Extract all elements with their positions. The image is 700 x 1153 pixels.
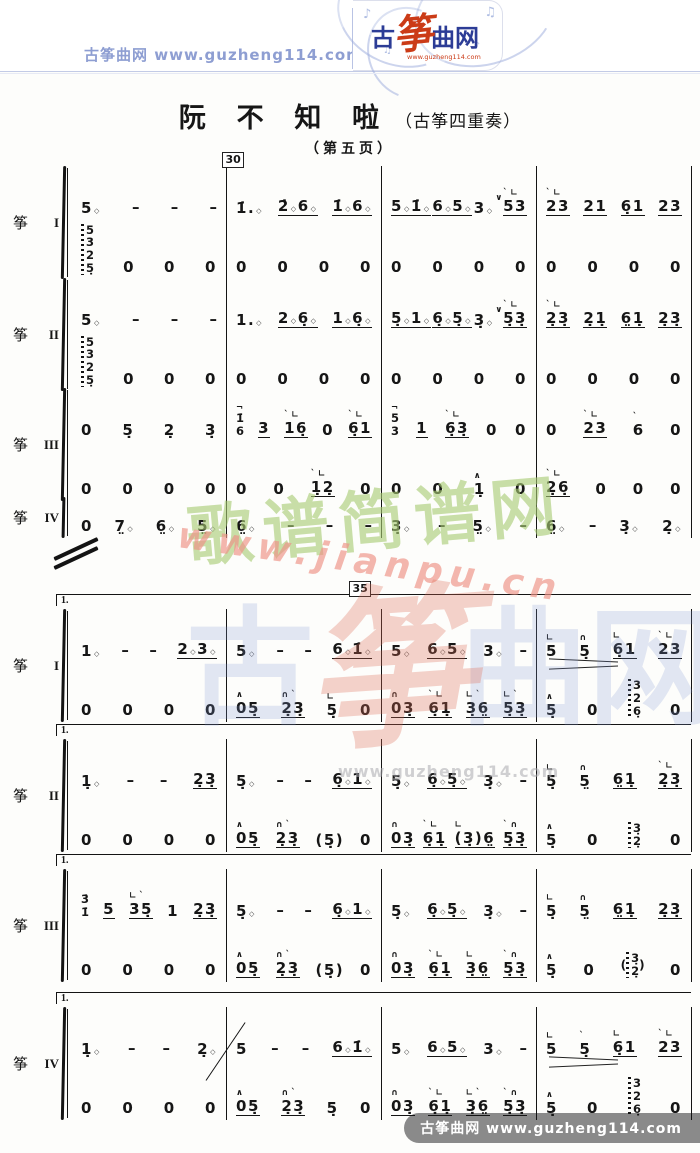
tremolo-diamond-icon: ◇ bbox=[365, 908, 372, 916]
accompaniment-line-measure: 00∧1̣0 bbox=[382, 442, 536, 501]
note-token: 6̣◇5̣◇ bbox=[427, 771, 467, 790]
part-label-numeral: III bbox=[44, 918, 59, 934]
tremolo-diamond-icon: ◇ bbox=[496, 1048, 503, 1056]
accompaniment-line-measure: 5325̣000 bbox=[72, 332, 226, 391]
measure: ∟5`5̣∟6̣1`∟23∧5̣0326̣0 bbox=[537, 1007, 692, 1120]
tremolo-diamond-icon: ◇ bbox=[94, 1048, 101, 1056]
note-token: 0 bbox=[670, 481, 682, 498]
note-token: (5̣) bbox=[316, 962, 345, 979]
melody-line-measure: 1̣◇––2̣◇ bbox=[72, 1007, 226, 1061]
ornament-mark: ∧ bbox=[474, 472, 484, 481]
measure-grid: 1̣◇––2̣3̣00005̣◇––6̣◇1◇∧05̣∩`2̣3̣(5̣)05̣… bbox=[72, 739, 692, 852]
note-token: 1◇ bbox=[81, 643, 101, 660]
note-token: 0 bbox=[486, 422, 498, 439]
system-zheng-IV: 筝IV07̤◇6̤◇5̤◇6̤◇–––3̣◇–5̤◇–6̤◇–3̣◇2̣◇ bbox=[10, 497, 692, 538]
tremolo-diamond-icon: ◇ bbox=[440, 648, 447, 656]
ornament-mark: ∩` bbox=[281, 691, 298, 700]
ornament-mark: ∩ bbox=[579, 894, 589, 903]
measure: 5◇6◇5◇3◇–∩03̣`∟6̣1̣∟`3̣6̤`∩5̣3̣ bbox=[382, 1007, 537, 1120]
tremolo-diamond-icon: ◇ bbox=[210, 1048, 217, 1056]
accompaniment-line-measure: ∧05̣∩`2̣3̣5̣0 bbox=[227, 1061, 381, 1120]
note-token: ∟5 bbox=[546, 643, 558, 660]
melody-line-measure: 05̣2̣3̣ bbox=[72, 388, 226, 442]
note-token: `∩5̣3̣ bbox=[503, 960, 527, 979]
note-token: 5◇1̇◇ bbox=[391, 198, 431, 217]
note-token: 0 bbox=[360, 832, 372, 849]
ornament-mark: `∟ bbox=[546, 470, 563, 479]
melody-line-measure: 1◇––2◇3◇ bbox=[72, 609, 226, 663]
ornament-mark: `∟ bbox=[428, 951, 445, 960]
ornament-mark: `∩ bbox=[503, 1089, 520, 1098]
note-token: 0 bbox=[587, 371, 599, 388]
tremolo-diamond-icon: ◇ bbox=[249, 910, 256, 918]
note-token: 0 bbox=[319, 371, 331, 388]
part-label-zheng: 筝 bbox=[13, 785, 28, 806]
note-token: 0 bbox=[122, 832, 134, 849]
tremolo-diamond-icon: ◇ bbox=[404, 650, 411, 658]
ornament-mark: `∟ bbox=[428, 1089, 445, 1098]
tremolo-diamond-icon: ◇ bbox=[632, 525, 639, 533]
tremolo-diamond-icon: ◇ bbox=[94, 207, 101, 215]
note-token: 0 bbox=[81, 962, 93, 979]
note-token: 0 bbox=[670, 371, 682, 388]
chord: 3̣2̣ bbox=[628, 822, 641, 848]
note-token: 0 bbox=[360, 371, 372, 388]
part-label: 筝I bbox=[10, 609, 62, 722]
accompaniment-line-measure: ∧5̣0(3̣2̣)0 bbox=[537, 923, 691, 982]
note-token: 2◇3◇ bbox=[177, 641, 217, 660]
note-token: – bbox=[519, 516, 527, 534]
note-token: 0 bbox=[546, 371, 558, 388]
accompaniment-line-measure: ∩03̣`∟6̣1̣∟(3̣)6̤`∩5̣3̣ bbox=[382, 793, 536, 852]
site-logo[interactable]: 古 筝 曲网 www.guzheng114.com bbox=[353, 0, 503, 71]
header-site-label: 古筝曲网 bbox=[84, 46, 148, 64]
note-token: `∟6̣1̣ bbox=[428, 960, 452, 979]
note-token: – bbox=[589, 516, 597, 534]
note-token: 2̣◇ bbox=[662, 518, 682, 535]
ornament-mark: ∧ bbox=[236, 951, 246, 960]
ornament-mark: ` bbox=[579, 1032, 586, 1041]
note-token: `∩5̣3̣ bbox=[503, 830, 527, 849]
ornament-mark: `∟ bbox=[348, 411, 365, 420]
part-label-zheng: 筝 bbox=[13, 324, 28, 345]
note-token: 0 bbox=[391, 481, 403, 498]
part-label-zheng: 筝 bbox=[13, 1053, 28, 1074]
system-zheng-III: 筝III05̣2̣3̣0000¬1̇63`∟16̣0`∟6̣100`∟1̣2̣0… bbox=[10, 388, 692, 501]
ornament-mark: `∩ bbox=[503, 821, 520, 830]
note-token: – bbox=[304, 901, 312, 919]
note-token: 1̇.◇ bbox=[236, 200, 263, 217]
note-token: 0 bbox=[595, 481, 607, 498]
note-token: ∟`35̣ bbox=[129, 901, 153, 920]
note-token: ∩`2̣3̣ bbox=[281, 1098, 305, 1117]
note-token: 6̤1̣ bbox=[613, 771, 637, 790]
measure: 0`∟23`60`∟2̣6̣000 bbox=[537, 388, 692, 501]
measure: 5◇–––5325̣000 bbox=[72, 166, 227, 279]
ornament-mark: ∧ bbox=[236, 1089, 246, 1098]
measure: 5̣◇6̣◇5̣◇3̣◇–∩03̣`∟6̣1̣∟3̣6̤`∩5̣3̣ bbox=[382, 869, 537, 982]
note-token: – bbox=[519, 771, 527, 789]
melody-line-measure: 07̤◇6̤◇5̤◇ bbox=[72, 497, 226, 538]
accompaniment-line-measure: `∟2̣6̣000 bbox=[537, 442, 691, 501]
note-token: 3̣◇ bbox=[483, 773, 503, 790]
note-token: 0 bbox=[122, 1100, 134, 1117]
note-token: 6̣◇5̣◇ bbox=[427, 901, 467, 920]
ornament-mark: `∟ bbox=[428, 691, 445, 700]
note-token: 0 bbox=[587, 832, 599, 849]
piece-title-main: 阮 不 知 啦 bbox=[179, 103, 391, 133]
ornament-mark: `∟ bbox=[658, 762, 675, 771]
melody-line-measure: ∟5̣∩5̤6̤1̣2̣3̣ bbox=[537, 869, 691, 923]
note-token: 0 bbox=[670, 832, 682, 849]
melody-line-measure: `∟23216̣123 bbox=[537, 166, 691, 220]
melody-line-measure: 0`∟23`60 bbox=[537, 388, 691, 442]
part-label-numeral: III bbox=[44, 437, 59, 453]
measure: ∟5̣∩5̤6̤1̣2̣3̣∧5̣0(3̣2̣)0 bbox=[537, 869, 692, 982]
measure-grid: 5◇–––5325̣0001.◇2◇6̣◇1◇6̣◇00005̣◇1◇6̣◇5̣… bbox=[72, 278, 692, 391]
melody-line-measure: 5◇––6◇1̇◇ bbox=[227, 609, 381, 663]
ornament-mark: ¬ bbox=[391, 404, 401, 413]
note-token: 5325̣ bbox=[81, 336, 94, 388]
note-token: ∩`2̣3̣ bbox=[276, 960, 300, 979]
note-token: 5 bbox=[103, 901, 115, 920]
note-token: 0 bbox=[474, 259, 486, 276]
chord: 326̣ bbox=[628, 679, 641, 718]
note-token: ∟`5̣3̣ bbox=[503, 700, 527, 719]
part-label: 筝IV bbox=[10, 497, 62, 538]
note-token: 1̇◇6◇ bbox=[332, 198, 372, 217]
note-token: ∩03̣ bbox=[391, 960, 415, 979]
rehearsal-mark-35: 35 bbox=[349, 581, 371, 597]
note-token: `∟23 bbox=[658, 641, 682, 660]
note-token: 326̣ bbox=[628, 1077, 641, 1116]
note-token: `6 bbox=[633, 422, 645, 439]
ornament-mark: ∩ bbox=[391, 821, 401, 830]
note-token: ∟(3̣)6̤ bbox=[455, 830, 496, 849]
note-token: – bbox=[276, 901, 284, 919]
measure: `∟23216̣1230000 bbox=[537, 166, 692, 279]
note-token: ∩5̤ bbox=[579, 903, 591, 920]
measure: 5◇––6◇1̇◇∧05̣∩`2̣3̣∟5̣0 bbox=[227, 609, 382, 722]
note-token: (3̣2̣) bbox=[621, 952, 645, 978]
tremolo-diamond-icon: ◇ bbox=[190, 648, 197, 656]
note-token: 5̣◇ bbox=[236, 773, 256, 790]
part-label-numeral: II bbox=[49, 788, 59, 804]
tremolo-diamond-icon: ◇ bbox=[169, 525, 176, 533]
tremolo-diamond-icon: ◇ bbox=[249, 525, 256, 533]
tremolo-diamond-icon: ◇ bbox=[404, 1048, 411, 1056]
note-token: ∨ bbox=[495, 202, 501, 216]
accompaniment-line-measure: 5325̣000 bbox=[72, 220, 226, 279]
part-label: 筝III bbox=[10, 869, 62, 982]
system-zheng-I: 1.筝I1◇––2◇3◇00005◇––6◇1̇◇∧05̣∩`2̣3̣∟5̣05… bbox=[10, 594, 692, 722]
measure: 05̣2̣3̣0000 bbox=[72, 388, 227, 501]
ornament-mark: `∟ bbox=[284, 411, 301, 420]
note-token: ∧05̣ bbox=[236, 830, 260, 849]
note-token: 6̤◇ bbox=[236, 518, 256, 535]
note-token: `∟2̣3̣ bbox=[658, 771, 682, 790]
volta-label: 1. bbox=[61, 855, 69, 866]
measure: 5̣◇1◇6̣◇5̣◇3̣◇∨`∟5̣3̣0000 bbox=[382, 278, 537, 391]
ornament-mark: ∟` bbox=[503, 691, 520, 700]
note-token: 0 bbox=[81, 832, 93, 849]
accompaniment-line-measure: 0000 bbox=[227, 332, 381, 391]
ornament-mark: ∩ bbox=[391, 951, 401, 960]
ornament-mark: ∧ bbox=[546, 823, 556, 832]
note-token: 0 bbox=[164, 962, 176, 979]
tremolo-diamond-icon: ◇ bbox=[365, 648, 372, 656]
chord: 326̣ bbox=[628, 1077, 641, 1116]
system-zheng-IV: 1.筝IV1̣◇––2̣◇00005––6◇1̇◇∧05̣∩`2̣3̣5̣05◇… bbox=[10, 992, 692, 1120]
note-token: 0 bbox=[515, 422, 527, 439]
part-label-zheng: 筝 bbox=[13, 655, 28, 676]
ornament-mark: ∩ bbox=[391, 1089, 401, 1098]
note-token: ∧1̣ bbox=[474, 481, 486, 498]
note-token: 0 bbox=[515, 259, 527, 276]
melody-line-measure: `∟2̣3̣2̣1̣6̤1̣2̣3̣ bbox=[537, 278, 691, 332]
note-token: 0 bbox=[122, 702, 134, 719]
ornament-mark: `∟ bbox=[423, 821, 440, 830]
system-zheng-II: 筝II5◇–––5325̣0001.◇2◇6̣◇1◇6̣◇00005̣◇1◇6̣… bbox=[10, 278, 692, 391]
note-token: ∟`3̣6̤ bbox=[466, 700, 490, 719]
tremolo-diamond-icon: ◇ bbox=[485, 525, 492, 533]
measure-grid: 1̣◇––2̣◇00005––6◇1̇◇∧05̣∩`2̣3̣5̣05◇6◇5◇3… bbox=[72, 1007, 692, 1120]
note-token: 0 bbox=[164, 371, 176, 388]
note-token: 0 bbox=[360, 702, 372, 719]
ornament-mark: ∩ bbox=[579, 634, 589, 643]
logo-wordmark: 古 筝 曲网 bbox=[371, 15, 479, 55]
ornament-mark: ∟ bbox=[455, 821, 465, 830]
note-token: 326̣ bbox=[628, 679, 641, 718]
measure: ∟5̣∩5̤6̤1̣`∟2̣3̣∧5̣03̣2̣0 bbox=[537, 739, 692, 852]
note-token: – bbox=[209, 310, 217, 328]
melody-line-measure: ∟5`5̣∟6̣1`∟23 bbox=[537, 1007, 691, 1061]
note-token: – bbox=[519, 1039, 527, 1057]
tremolo-diamond-icon: ◇ bbox=[249, 650, 256, 658]
tremolo-diamond-icon: ◇ bbox=[487, 319, 494, 327]
accompaniment-line-measure: 0000 bbox=[72, 442, 226, 501]
note-token: 0 bbox=[164, 259, 176, 276]
note-token: 0 bbox=[164, 481, 176, 498]
note-token: 5̣◇ bbox=[236, 903, 256, 920]
note-token: ∨ bbox=[495, 314, 501, 328]
system-zheng-III: 1.筝III3̇1̇5∟`35̣12̣3̣00005̣◇––6̣◇1◇∧05̣∩… bbox=[10, 854, 692, 982]
tremolo-diamond-icon: ◇ bbox=[404, 525, 411, 533]
chord: 3̣2̣ bbox=[626, 952, 639, 978]
page-number-subtitle: （第五页） bbox=[0, 138, 700, 158]
note-token: 0 bbox=[432, 259, 444, 276]
measure: 1◇––2◇3◇0000 bbox=[72, 609, 227, 722]
ornament-mark: ∩ bbox=[391, 691, 401, 700]
tremolo-diamond-icon: ◇ bbox=[445, 317, 452, 325]
accompaniment-line-measure: 0000 bbox=[72, 663, 226, 722]
note-token: `∟2̣6̣ bbox=[546, 479, 570, 498]
measure-grid: 3̇1̇5∟`35̣12̣3̣00005̣◇––6̣◇1◇∧05̣∩`2̣3̣(… bbox=[72, 869, 692, 982]
note-token: ∟5̣ bbox=[546, 903, 558, 920]
note-token: 0 bbox=[205, 481, 217, 498]
volta-label: 1. bbox=[61, 595, 69, 606]
measure: 3̣◇–5̤◇– bbox=[382, 497, 537, 538]
note-token: `∟23 bbox=[546, 198, 570, 217]
part-label-zheng: 筝 bbox=[13, 915, 28, 936]
tremolo-diamond-icon: ◇ bbox=[311, 317, 318, 325]
tremolo-diamond-icon: ◇ bbox=[365, 317, 372, 325]
tremolo-diamond-icon: ◇ bbox=[94, 780, 101, 788]
system-zheng-II: 1.筝II1̣◇––2̣3̣00005̣◇––6̣◇1◇∧05̣∩`2̣3̣(5… bbox=[10, 724, 692, 852]
note-token: 0 bbox=[629, 259, 641, 276]
tremolo-diamond-icon: ◇ bbox=[445, 205, 452, 213]
note-token: 6̤◇ bbox=[546, 518, 566, 535]
arpeggio-line bbox=[628, 822, 631, 848]
note-token: – bbox=[132, 310, 140, 328]
note-token: 0 bbox=[123, 259, 135, 276]
ornament-mark: ∧ bbox=[546, 1091, 556, 1100]
note-token: – bbox=[171, 198, 179, 216]
note-token: `∟5̣3̣ bbox=[503, 310, 527, 329]
ornament-mark: ∧ bbox=[236, 821, 246, 830]
accompaniment-line-measure: ∧5̣03̣2̣0 bbox=[537, 793, 691, 852]
note-token: – bbox=[519, 641, 527, 659]
melody-line-measure: 5◇6◇5◇3◇– bbox=[382, 1007, 536, 1061]
arpeggio-line bbox=[626, 952, 629, 978]
note-token: `∟6̣3̣ bbox=[445, 420, 469, 439]
note-token: ∧5̣ bbox=[546, 1100, 558, 1117]
note-token: – bbox=[209, 198, 217, 216]
note-token: 0 bbox=[360, 962, 372, 979]
note-token: 0 bbox=[670, 702, 682, 719]
note-token: 3 bbox=[258, 420, 270, 439]
note-token: 0 bbox=[474, 371, 486, 388]
measure: 1̣◇––2̣3̣0000 bbox=[72, 739, 227, 852]
music-note-icon bbox=[484, 5, 496, 20]
tremolo-diamond-icon: ◇ bbox=[460, 908, 467, 916]
note-token: – bbox=[127, 771, 135, 789]
note-token: 0 bbox=[391, 259, 403, 276]
logo-chars-quwang: 曲网 bbox=[431, 27, 479, 51]
accompaniment-line-measure: ∧05̣∩`2̣3̣(5̣)0 bbox=[227, 923, 381, 982]
measure: 6̤◇––– bbox=[227, 497, 382, 538]
note-token: 0 bbox=[236, 371, 248, 388]
system-bracket bbox=[62, 278, 69, 391]
note-token: – bbox=[519, 901, 527, 919]
ornament-mark: `∟ bbox=[503, 189, 520, 198]
system-bracket bbox=[62, 609, 69, 722]
note-token: 0 bbox=[81, 481, 93, 498]
note-token: 6̣◇1◇ bbox=[332, 771, 372, 790]
chord: 5325̣ bbox=[81, 336, 94, 388]
ornament-mark: ∟` bbox=[466, 691, 483, 700]
note-token: 6̣◇5̣◇ bbox=[432, 310, 472, 329]
measure-grid: 5◇–––5325̣0001̇.◇2̇◇6◇1̇◇6◇00005◇1̇◇6◇5◇… bbox=[72, 166, 692, 279]
note-token: 2̣3̣ bbox=[658, 901, 682, 920]
melody-line-measure: 5̣◇––6̣◇1◇ bbox=[227, 869, 381, 923]
accompaniment-line-measure: 0000 bbox=[72, 793, 226, 852]
chord: 5325̣ bbox=[81, 224, 94, 276]
footer-site-url: www.guzheng114.com bbox=[486, 1121, 682, 1137]
note-token: 21 bbox=[583, 198, 607, 217]
note-token: 3̣◇ bbox=[391, 518, 411, 535]
tremolo-diamond-icon: ◇ bbox=[559, 525, 566, 533]
note-token: – bbox=[364, 516, 372, 534]
accompaniment-line-measure: ∩03̣`∟6̣1̣∟`3̣6̤`∩5̣3̣ bbox=[382, 1061, 536, 1120]
header-site-link[interactable]: 古筝曲网 www.guzheng114.com bbox=[84, 44, 363, 65]
measure: 3̇1̇5∟`35̣12̣3̣0000 bbox=[72, 869, 227, 982]
note-token: 0 bbox=[587, 702, 599, 719]
tremolo-diamond-icon: ◇ bbox=[210, 648, 217, 656]
logo-char-gu: 古 bbox=[371, 27, 395, 51]
ornament-mark: `∟ bbox=[546, 301, 563, 310]
note-token: 5◇ bbox=[81, 312, 101, 329]
ornament-mark: `∟ bbox=[445, 411, 462, 420]
note-token: 0 bbox=[277, 371, 289, 388]
section-break-mark bbox=[52, 542, 100, 570]
accompaniment-line-measure: 00`∟1̣2̣0 bbox=[227, 442, 381, 501]
tremolo-diamond-icon: ◇ bbox=[345, 908, 352, 916]
measure: 5◇1̇◇6◇5◇3◇∨`∟530000 bbox=[382, 166, 537, 279]
note-token: ∩`2̣3̣ bbox=[276, 830, 300, 849]
note-token: ∟5̣ bbox=[546, 773, 558, 790]
note-token: ∧05̣ bbox=[236, 960, 260, 979]
volta-bracket: 1. bbox=[56, 724, 691, 736]
tremolo-diamond-icon: ◇ bbox=[465, 205, 472, 213]
note-token: 0 bbox=[546, 422, 558, 439]
melody-line-measure: ∟5̣∩5̤6̤1̣`∟2̣3̣ bbox=[537, 739, 691, 793]
melody-line-measure: 1̇.◇2̇◇6◇1̇◇6◇ bbox=[227, 166, 381, 220]
chord: 53 bbox=[391, 412, 399, 438]
measure: 5̣◇6̣◇5̣◇3̣◇–∩03̣`∟6̣1̣∟(3̣)6̤`∩5̣3̣ bbox=[382, 739, 537, 852]
tremolo-diamond-icon: ◇ bbox=[94, 319, 101, 327]
note-token: `∩5̣3̣ bbox=[503, 1098, 527, 1117]
note-token: 6̤◇ bbox=[156, 518, 176, 535]
note-token: 0 bbox=[360, 1100, 372, 1117]
tremolo-diamond-icon: ◇ bbox=[345, 317, 352, 325]
note-token: 3̇1̇ bbox=[81, 893, 89, 919]
note-token: ¬1̇6 bbox=[236, 412, 244, 438]
part-label-zheng: 筝 bbox=[13, 507, 28, 528]
note-token: 6◇1̇◇ bbox=[332, 1039, 372, 1058]
measure: ∟5∩5̣∟6̣1`∟23∧5̣0326̣0 bbox=[537, 609, 692, 722]
note-token: 0 bbox=[432, 371, 444, 388]
note-token: ∧5̣ bbox=[546, 702, 558, 719]
measure: 1̣◇––2̣◇0000 bbox=[72, 1007, 227, 1120]
note-token: (5̣) bbox=[316, 832, 345, 849]
tremolo-diamond-icon: ◇ bbox=[291, 205, 298, 213]
tremolo-diamond-icon: ◇ bbox=[440, 1046, 447, 1054]
note-token: 5 bbox=[236, 1041, 248, 1058]
ornament-mark: `∟ bbox=[311, 470, 328, 479]
tremolo-diamond-icon: ◇ bbox=[404, 780, 411, 788]
melody-line-measure: 1̣◇––2̣3̣ bbox=[72, 739, 226, 793]
part-label-zheng: 筝 bbox=[13, 434, 28, 455]
note-token: `∟6̣1̣ bbox=[428, 700, 452, 719]
tremolo-diamond-icon: ◇ bbox=[94, 650, 101, 658]
ornament-mark: ∟ bbox=[546, 764, 556, 773]
note-token: – bbox=[149, 641, 157, 659]
note-token: 5◇ bbox=[391, 1041, 411, 1058]
note-token: 6◇5◇ bbox=[427, 1039, 467, 1058]
tremolo-diamond-icon: ◇ bbox=[675, 525, 682, 533]
note-token: 0 bbox=[629, 371, 641, 388]
note-token: 6̤1̣ bbox=[613, 901, 637, 920]
note-token: 0 bbox=[633, 481, 645, 498]
note-token: 5̣◇1◇ bbox=[391, 310, 431, 329]
note-token: 0 bbox=[164, 832, 176, 849]
melody-line-measure: ¬1̇63`∟16̣0`∟6̣1 bbox=[227, 388, 381, 442]
note-token: 1.◇ bbox=[236, 312, 263, 329]
note-token: 5◇ bbox=[81, 200, 101, 217]
note-token: 0 bbox=[583, 962, 595, 979]
note-token: ∟6̣1 bbox=[613, 641, 637, 660]
